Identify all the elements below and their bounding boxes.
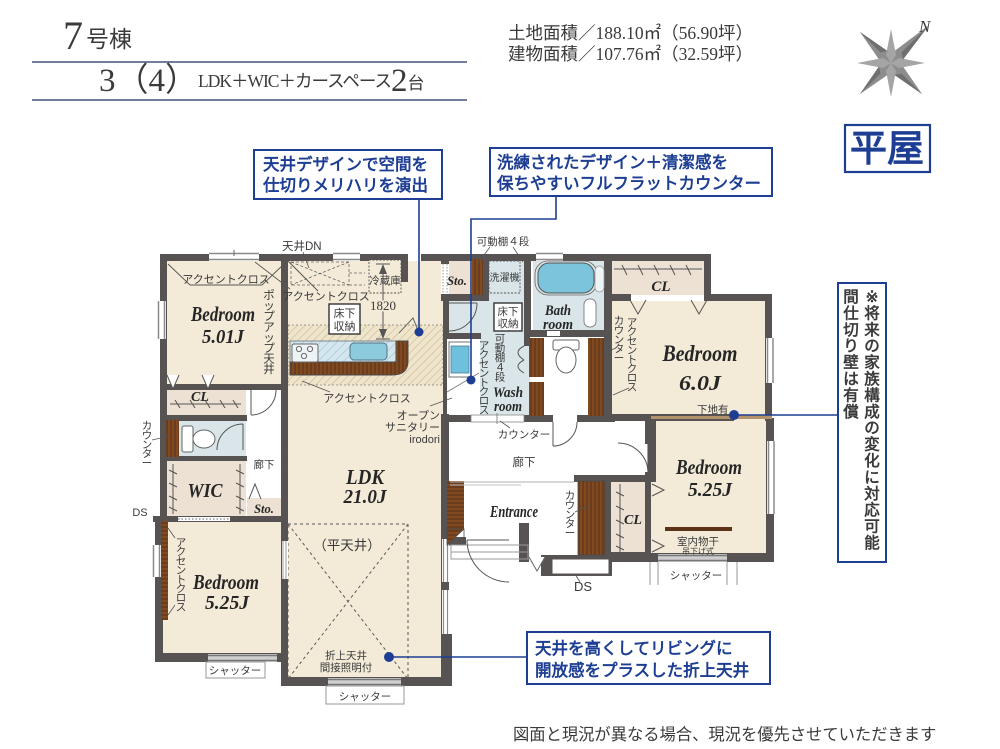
svg-text:irodori: irodori [409, 434, 440, 446]
svg-text:来: 来 [863, 320, 880, 339]
svg-text:折上天井: 折上天井 [325, 649, 367, 662]
svg-text:room: room [543, 317, 573, 333]
svg-text:井: 井 [263, 362, 275, 376]
svg-text:21.0J: 21.0J [343, 486, 388, 508]
svg-text:有: 有 [843, 385, 859, 404]
svg-text:5.25J: 5.25J [205, 592, 250, 614]
svg-text:7: 7 [63, 13, 83, 58]
svg-text:仕切りメリハリを演出: 仕切りメリハリを演出 [262, 175, 428, 195]
svg-text:建物面積／107.76㎡（32.59坪）: 建物面積／107.76㎡（32.59坪） [508, 44, 753, 64]
svg-text:土地面積／188.10㎡（56.90坪）: 土地面積／188.10㎡（56.90坪） [508, 23, 753, 43]
svg-text:Bedroom: Bedroom [190, 302, 255, 326]
svg-text:冷蔵庫: 冷蔵庫 [369, 274, 401, 287]
svg-text:CL: CL [191, 390, 209, 405]
svg-text:廊下: 廊下 [513, 455, 536, 469]
svg-text:間接照明付: 間接照明付 [320, 661, 373, 674]
svg-text:DS: DS [132, 507, 147, 519]
svg-text:対: 対 [863, 484, 880, 503]
svg-text:サニタリー: サニタリー [385, 421, 440, 434]
svg-text:間: 間 [843, 288, 859, 306]
svg-text:号棟: 号棟 [86, 27, 132, 52]
svg-text:図面と現況が異なる場合、現況を優先させていただきます: 図面と現況が異なる場合、現況を優先させていただきます [513, 726, 936, 744]
svg-text:カウンター: カウンター [498, 429, 551, 441]
svg-text:償: 償 [842, 402, 859, 421]
svg-text:族: 族 [864, 369, 880, 388]
svg-text:ー: ー [565, 528, 576, 540]
svg-text:切: 切 [843, 321, 859, 339]
svg-text:CL: CL [624, 513, 642, 528]
svg-text:の: の [864, 420, 880, 437]
svg-text:Bedroom: Bedroom [192, 570, 259, 594]
svg-text:CL: CL [651, 279, 670, 295]
svg-text:DS: DS [574, 579, 592, 594]
svg-text:ー: ー [142, 458, 153, 470]
svg-text:可: 可 [864, 519, 880, 536]
svg-text:段: 段 [495, 370, 506, 383]
svg-text:床下: 床下 [334, 306, 356, 320]
svg-text:アクセントクロス: アクセントクロス [182, 273, 269, 286]
svg-text:平屋: 平屋 [850, 129, 924, 170]
svg-text:能: 能 [864, 533, 880, 552]
svg-text:将: 将 [864, 303, 880, 322]
svg-text:N: N [918, 17, 932, 36]
svg-text:成: 成 [864, 402, 880, 421]
svg-text:Bedroom: Bedroom [675, 455, 742, 479]
svg-text:可動棚４段: 可動棚４段 [477, 235, 530, 248]
svg-text:（平天井）: （平天井） [313, 538, 381, 553]
svg-text:収納: 収納 [498, 317, 519, 330]
svg-text:応: 応 [864, 500, 880, 519]
svg-text:下地有: 下地有 [697, 403, 729, 416]
svg-text:仕: 仕 [842, 303, 859, 322]
svg-text:1820: 1820 [370, 298, 396, 313]
svg-text:家: 家 [864, 353, 880, 372]
svg-text:保ちやすいフルフラットカウンター: 保ちやすいフルフラットカウンター [496, 173, 761, 193]
svg-text:洗練されたデザイン＋清潔感を: 洗練されたデザイン＋清潔感を [497, 152, 728, 172]
svg-text:ス: ス [627, 381, 638, 393]
svg-text:変: 変 [864, 435, 880, 454]
svg-text:天井DN: 天井DN [282, 239, 322, 253]
svg-text:化: 化 [864, 451, 880, 470]
svg-text:に: に [864, 469, 880, 486]
svg-text:ス: ス [479, 404, 490, 416]
svg-text:Entrance: Entrance [489, 502, 538, 521]
svg-text:ー: ー [614, 353, 625, 365]
svg-text:Sto.: Sto. [254, 502, 274, 516]
svg-text:収納: 収納 [334, 320, 356, 333]
svg-text:天井を高くしてリビングに: 天井を高くしてリビングに [535, 638, 733, 658]
svg-text:WIC: WIC [188, 480, 224, 502]
svg-text:洗濯機: 洗濯機 [490, 271, 520, 284]
svg-text:5.01J: 5.01J [202, 326, 245, 348]
svg-text:開放感をプラスした折上天井: 開放感をプラスした折上天井 [535, 660, 749, 680]
svg-text:6.0J: 6.0J [679, 371, 723, 395]
svg-text:※: ※ [866, 289, 879, 306]
svg-text:アクセントクロス: アクセントクロス [282, 290, 369, 303]
svg-text:壁: 壁 [843, 353, 859, 372]
svg-text:床下: 床下 [498, 305, 519, 318]
svg-text:は: は [843, 371, 859, 388]
svg-text:Bedroom: Bedroom [662, 341, 738, 366]
svg-text:シャッター: シャッター [209, 665, 262, 677]
svg-text:シャッター: シャッター [670, 570, 723, 582]
svg-text:構: 構 [864, 385, 880, 404]
svg-text:天井デザインで空間を: 天井デザインで空間を [263, 154, 428, 174]
svg-text:シャッター: シャッター [339, 691, 392, 703]
svg-text:り: り [843, 337, 859, 355]
svg-text:Sto.: Sto. [447, 274, 467, 288]
svg-text:廊下: 廊下 [254, 458, 275, 471]
svg-text:room: room [494, 399, 522, 415]
svg-text:オープン: オープン [397, 409, 440, 422]
svg-text:吊下げ式: 吊下げ式 [682, 546, 714, 556]
svg-text:5.25J: 5.25J [688, 479, 733, 501]
svg-text:の: の [864, 338, 880, 355]
svg-text:アクセントクロス: アクセントクロス [323, 392, 410, 405]
svg-text:ス: ス [176, 601, 187, 613]
